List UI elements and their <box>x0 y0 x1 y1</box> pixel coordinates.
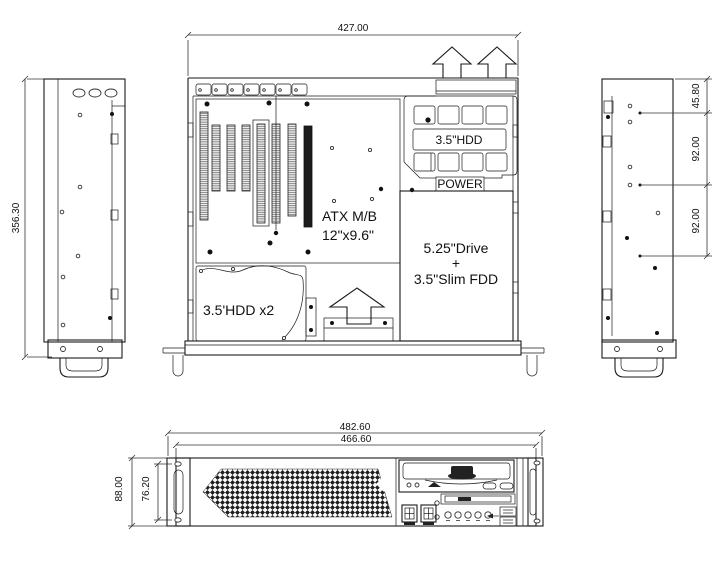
side-height-dim-label: 356.30 <box>11 202 22 233</box>
chassis-technical-drawing: 427.00 <box>0 0 725 571</box>
side-screw-holes <box>60 112 118 327</box>
handle-right <box>615 358 663 377</box>
cdrom-eject-button <box>500 483 513 489</box>
right-dim-top-label: 45.80 <box>691 83 702 108</box>
right-dim-mid-label: 92.00 <box>691 136 702 161</box>
hdd-bay-label: 3.5"HDD <box>436 133 483 147</box>
drive-bay-label-line2: + <box>452 255 460 271</box>
power-label: POWER <box>437 177 483 191</box>
drive-bay-label-line1: 5.25"Drive <box>424 240 489 256</box>
right-side-holes <box>603 104 660 335</box>
reset-switch <box>421 505 436 525</box>
drive-bay-label-line3: 3.5"Slim FDD <box>414 271 498 287</box>
rear-slot-brackets <box>196 84 307 95</box>
drive-bay-box: 5.25"Drive + 3.5"Slim FDD <box>400 191 513 341</box>
front-rail <box>163 341 544 376</box>
dim-top-width: 427.00 <box>185 23 521 76</box>
rack-ear-side-left <box>48 340 122 358</box>
top-width-dim-label: 427.00 <box>338 23 369 34</box>
rack-ear-front-right <box>523 458 543 526</box>
fan-arrow <box>330 288 384 324</box>
power-switch <box>402 505 417 525</box>
motherboard-label-line2: 12"x9.6" <box>322 227 374 243</box>
expansion-slots <box>200 96 312 230</box>
foot-left <box>173 355 183 376</box>
cdrom-drive <box>399 460 514 492</box>
usb-ports <box>487 507 516 526</box>
exhaust-arrow-left <box>433 47 471 78</box>
hdd-bay: 3.5"HDD <box>404 96 517 178</box>
foot-right <box>527 355 537 376</box>
motherboard-area: ATX M/B 12"x9.6" <box>196 96 414 263</box>
front-view: 482.60 466.60 88.00 76.20 <box>114 422 545 529</box>
exhaust-vent <box>436 80 516 94</box>
front-fan <box>324 288 393 341</box>
right-side-view: 45.80 92.00 92.00 <box>602 76 712 377</box>
cdrom-button-1 <box>483 483 496 489</box>
drive-module <box>396 458 517 526</box>
left-side-view: 356.30 <box>11 76 125 377</box>
front-outer-width-label: 482.60 <box>340 422 371 433</box>
front-hole-spacing-label: 76.20 <box>141 476 152 501</box>
motherboard-label-line1: ATX M/B <box>322 208 377 224</box>
rack-ear-side-right <box>602 340 676 358</box>
handle-left <box>60 358 108 377</box>
side-vent-ovals <box>73 89 117 97</box>
top-view: 427.00 <box>163 23 544 376</box>
front-height-label: 88.00 <box>114 476 125 501</box>
exhaust-arrow-right <box>478 47 516 78</box>
rack-ear-front-left <box>167 458 190 526</box>
front-inner-width-label: 466.60 <box>341 434 372 445</box>
dim-side-height: 356.30 <box>11 76 52 360</box>
hdd-x2-area: 3.5'HDD x2 <box>196 266 316 341</box>
drawing-svg: 427.00 <box>0 0 725 571</box>
dim-right-side: 45.80 92.00 92.00 <box>640 76 712 259</box>
power-label-box: POWER <box>436 177 484 191</box>
fdd-drive <box>441 494 515 504</box>
dim-front-inner-width: 466.60 <box>173 434 539 458</box>
hdd-x2-label: 3.5'HDD x2 <box>203 302 274 318</box>
right-dim-bottom-label: 92.00 <box>691 208 702 233</box>
vent-mesh <box>203 469 392 517</box>
led-indicators <box>445 512 491 521</box>
